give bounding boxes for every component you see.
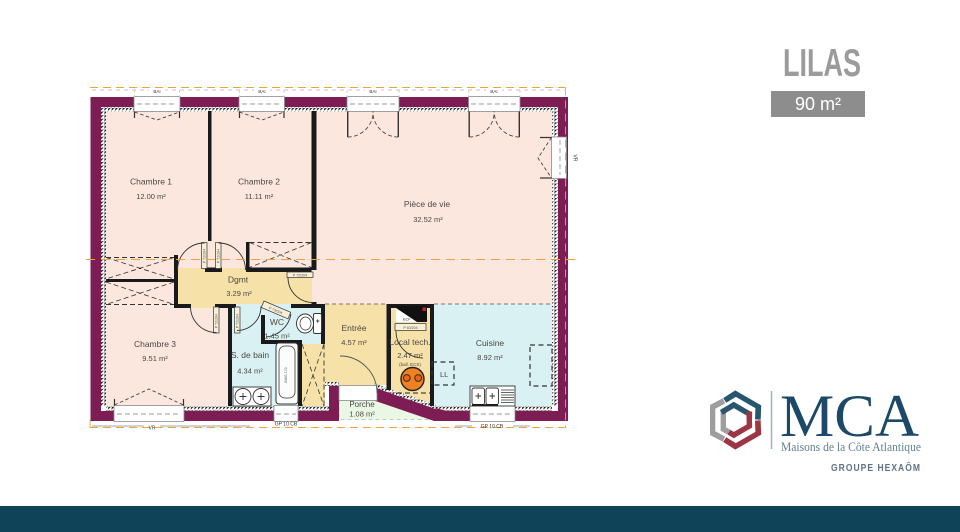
svg-text:BAI: BAI bbox=[490, 89, 497, 94]
svg-text:S. de bain: S. de bain bbox=[231, 350, 270, 360]
svg-text:LL: LL bbox=[440, 370, 448, 379]
svg-text:3.29 m²: 3.29 m² bbox=[226, 289, 252, 298]
svg-text:1.45 m²: 1.45 m² bbox=[264, 332, 290, 341]
svg-text:ECF: ECF bbox=[403, 318, 411, 322]
svg-text:P 60/204: P 60/204 bbox=[403, 326, 417, 330]
svg-text:2.47 m²: 2.47 m² bbox=[397, 351, 423, 360]
svg-text:Dgmt: Dgmt bbox=[228, 275, 249, 285]
svg-text:9.51 m²: 9.51 m² bbox=[142, 354, 168, 363]
svg-text:Porche: Porche bbox=[349, 400, 375, 409]
svg-text:4.57 m²: 4.57 m² bbox=[341, 338, 367, 347]
svg-text:Entrée: Entrée bbox=[341, 323, 366, 333]
svg-text:P 72/204: P 72/204 bbox=[236, 314, 240, 328]
svg-text:Maisons de la Côte Atlantique: Maisons de la Côte Atlantique bbox=[781, 439, 921, 454]
svg-text:32.52 m²: 32.52 m² bbox=[413, 215, 443, 224]
svg-text:BAI: BAI bbox=[153, 89, 160, 94]
svg-text:90 m²: 90 m² bbox=[795, 94, 841, 114]
svg-text:(ball. ECS): (ball. ECS) bbox=[399, 362, 421, 367]
svg-text:WC: WC bbox=[270, 317, 284, 327]
svg-text:4.34 m²: 4.34 m² bbox=[237, 367, 263, 376]
svg-text:BAI: BAI bbox=[258, 89, 265, 94]
svg-text:11.11 m²: 11.11 m² bbox=[245, 192, 274, 201]
svg-text:GP 10 CB: GP 10 CB bbox=[481, 424, 504, 430]
svg-text:BAI: BAI bbox=[369, 89, 376, 94]
svg-text:Chambre 1: Chambre 1 bbox=[130, 177, 172, 187]
svg-text:Chambre 3: Chambre 3 bbox=[134, 339, 176, 349]
svg-text:8.92 m²: 8.92 m² bbox=[477, 353, 503, 362]
svg-text:LILAS: LILAS bbox=[783, 42, 861, 85]
svg-text:Chambre 2: Chambre 2 bbox=[238, 177, 280, 187]
svg-text:Pièce de vie: Pièce de vie bbox=[404, 199, 451, 209]
svg-text:GP 10 CB: GP 10 CB bbox=[275, 422, 298, 428]
svg-text:GROUPE HEXAÔM: GROUPE HEXAÔM bbox=[831, 461, 921, 474]
svg-text:1.08 m²: 1.08 m² bbox=[349, 410, 375, 419]
svg-text:P 72/204: P 72/204 bbox=[203, 249, 207, 263]
svg-text:P 72/204: P 72/204 bbox=[215, 314, 219, 328]
svg-text:P 72/204: P 72/204 bbox=[293, 273, 307, 277]
svg-text:BAIG 170: BAIG 170 bbox=[284, 367, 288, 382]
svg-text:Local tech.: Local tech. bbox=[389, 337, 430, 347]
svg-text:Cuisine: Cuisine bbox=[476, 338, 505, 348]
svg-text:12.00 m²: 12.00 m² bbox=[136, 192, 166, 201]
svg-text:P 72/204: P 72/204 bbox=[217, 249, 221, 263]
svg-text:VR: VR bbox=[572, 155, 578, 162]
svg-text:VR: VR bbox=[149, 426, 156, 432]
